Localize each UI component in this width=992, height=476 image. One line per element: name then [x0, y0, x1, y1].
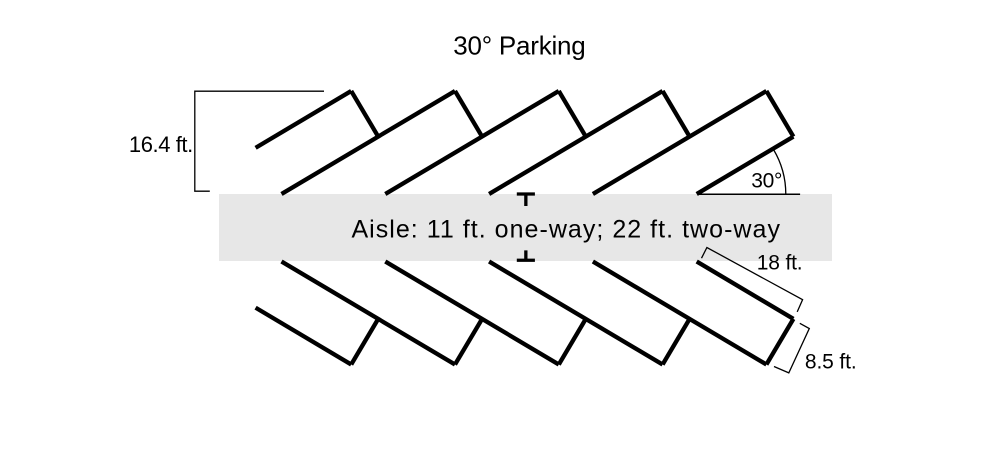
- svg-text:30°: 30°: [751, 169, 782, 192]
- svg-text:30° Parking: 30° Parking: [453, 31, 586, 61]
- svg-text:16.4 ft.: 16.4 ft.: [129, 132, 193, 157]
- svg-text:8.5 ft.: 8.5 ft.: [805, 350, 857, 373]
- svg-text:Aisle: 11 ft. one-way; 22 ft.: Aisle: 11 ft. one-way; 22 ft. two-way: [351, 216, 780, 244]
- svg-text:18 ft.: 18 ft.: [757, 251, 803, 274]
